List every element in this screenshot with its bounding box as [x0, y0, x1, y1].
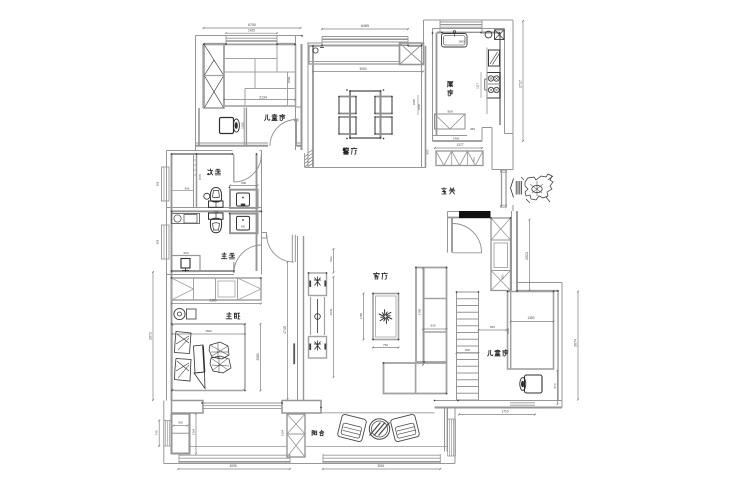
svg-text:900: 900 [178, 420, 183, 424]
svg-text:906: 906 [185, 187, 190, 191]
svg-text:3674: 3674 [573, 339, 577, 347]
svg-text:3495: 3495 [412, 98, 416, 105]
svg-text:1025: 1025 [241, 122, 245, 129]
svg-text:600: 600 [465, 348, 470, 352]
svg-text:673: 673 [472, 157, 476, 162]
svg-text:6485: 6485 [361, 24, 369, 28]
svg-text:2717: 2717 [518, 80, 522, 88]
svg-text:600: 600 [183, 251, 188, 255]
svg-text:1710: 1710 [501, 409, 508, 413]
svg-text:2380: 2380 [209, 299, 216, 303]
svg-text:1364: 1364 [191, 428, 195, 435]
svg-text:1500: 1500 [287, 76, 291, 83]
svg-text:1800: 1800 [458, 40, 465, 44]
svg-text:1500: 1500 [205, 329, 212, 333]
svg-text:3061: 3061 [377, 464, 384, 468]
svg-text:1400: 1400 [453, 136, 460, 140]
svg-text:958: 958 [447, 110, 452, 114]
svg-text:450: 450 [470, 127, 475, 131]
svg-text:1202: 1202 [506, 328, 510, 334]
svg-text:1570: 1570 [198, 173, 202, 180]
svg-text:2700: 2700 [418, 308, 422, 315]
svg-text:845: 845 [490, 325, 495, 329]
svg-text:450: 450 [241, 226, 246, 229]
svg-text:1425: 1425 [248, 29, 255, 33]
svg-text:908: 908 [156, 181, 160, 186]
svg-text:1377: 1377 [456, 143, 463, 147]
svg-text:2134: 2134 [259, 95, 267, 99]
svg-text:4745: 4745 [283, 326, 287, 334]
svg-text:740: 740 [155, 430, 159, 435]
svg-text:900: 900 [425, 149, 429, 154]
svg-text:930: 930 [430, 324, 435, 328]
svg-text:1364: 1364 [280, 429, 284, 436]
svg-text:6750: 6750 [248, 23, 256, 27]
svg-text:800: 800 [241, 181, 246, 185]
svg-text:608: 608 [156, 239, 160, 244]
svg-text:2080: 2080 [256, 353, 260, 360]
svg-text:1150: 1150 [359, 312, 363, 319]
svg-text:1350: 1350 [527, 316, 534, 320]
svg-text:1117: 1117 [476, 83, 480, 89]
svg-text:2672: 2672 [148, 332, 152, 340]
svg-text:750: 750 [214, 210, 219, 214]
svg-text:900: 900 [501, 274, 505, 279]
svg-text:2023: 2023 [525, 252, 529, 260]
svg-text:2640: 2640 [329, 308, 333, 315]
svg-text:3050: 3050 [359, 67, 366, 71]
svg-text:593: 593 [329, 256, 333, 261]
svg-text:3095: 3095 [229, 464, 236, 468]
svg-text:790: 790 [383, 343, 388, 347]
svg-text:873: 873 [553, 383, 557, 388]
